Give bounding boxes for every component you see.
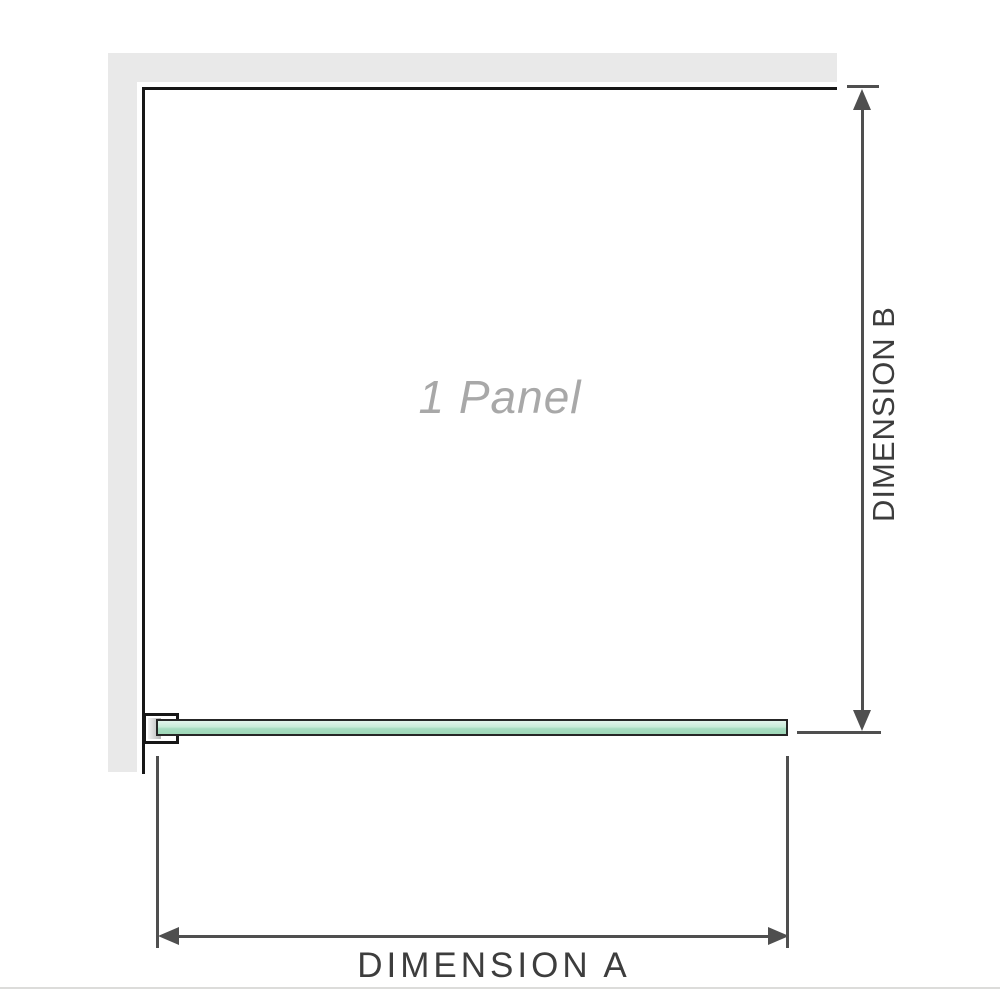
shower-panel-diagram: 1 Panel DIMENSION B DIMENSION A <box>0 0 1000 1000</box>
dimension-a-arrowhead-right-icon <box>768 927 789 945</box>
glass-panel-bar <box>156 719 788 736</box>
dimension-a-left-extension-line <box>156 756 159 948</box>
wall-left-strip <box>108 53 137 772</box>
dimension-b-bottom-tick <box>797 731 881 734</box>
panel-area-outline <box>142 87 837 774</box>
dimension-b-label: DIMENSION B <box>864 284 904 544</box>
dimension-b-arrowhead-up-icon <box>853 89 871 110</box>
wall-top-strip <box>108 53 837 82</box>
bottom-divider-line <box>0 987 1000 989</box>
dimension-b-arrowhead-down-icon <box>853 710 871 731</box>
dimension-a-label: DIMENSION A <box>334 948 654 984</box>
dimension-a-line <box>166 935 778 938</box>
dimension-a-arrowhead-left-icon <box>158 927 179 945</box>
dimension-a-right-extension-line <box>786 756 789 948</box>
dimension-b-top-tick <box>847 85 879 88</box>
panel-count-label: 1 Panel <box>350 368 650 426</box>
